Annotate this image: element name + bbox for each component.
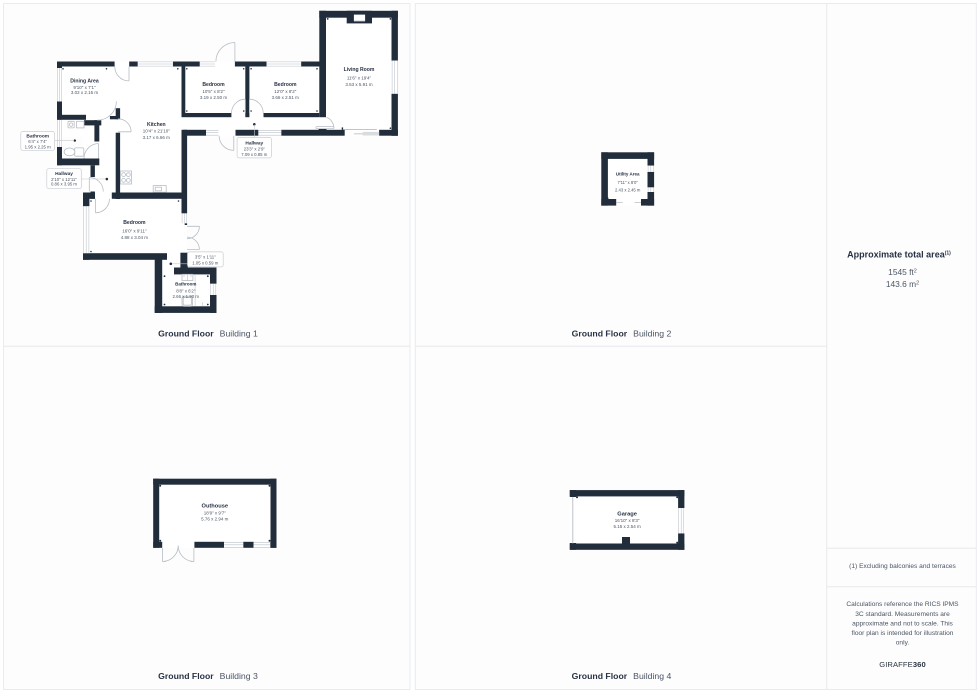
svg-text:Utility Area: Utility Area: [616, 172, 640, 177]
svg-text:143.6 m2: 143.6 m2: [886, 279, 919, 289]
svg-text:10'5" x 8'2": 10'5" x 8'2": [202, 89, 225, 94]
svg-text:Garage: Garage: [617, 512, 637, 518]
svg-text:2.43 x 2.45 m: 2.43 x 2.45 m: [615, 187, 641, 192]
svg-text:approximate and not to scale.: approximate and not to scale. This: [852, 620, 953, 627]
svg-text:Bedroom: Bedroom: [274, 82, 297, 88]
svg-text:3.53 x 5.91 m: 3.53 x 5.91 m: [345, 82, 373, 87]
svg-text:3.66 x 2.51 m: 3.66 x 2.51 m: [272, 95, 300, 100]
svg-text:Ground FloorBuilding 4: Ground FloorBuilding 4: [572, 671, 672, 681]
svg-text:Bedroom: Bedroom: [202, 82, 225, 88]
svg-text:Bathroom: Bathroom: [175, 281, 196, 286]
svg-text:Ground FloorBuilding 2: Ground FloorBuilding 2: [572, 329, 672, 339]
svg-text:1.95 x 2.25 m: 1.95 x 2.25 m: [25, 145, 51, 150]
svg-text:Living Room: Living Room: [344, 67, 375, 73]
svg-text:1545 ft2: 1545 ft2: [888, 267, 917, 277]
svg-text:only.: only.: [896, 640, 910, 647]
svg-text:Bedroom: Bedroom: [123, 220, 146, 226]
svg-text:Kitchen: Kitchen: [147, 122, 166, 128]
svg-text:0.86 x 3.95 m: 0.86 x 3.95 m: [51, 182, 77, 187]
svg-text:5.76 x 2.94 m: 5.76 x 2.94 m: [201, 516, 229, 521]
svg-text:floor plan is intended for ill: floor plan is intended for illustration: [852, 630, 954, 637]
svg-text:12'0" x 8'2": 12'0" x 8'2": [274, 89, 297, 94]
svg-text:3.19 x 2.50 m: 3.19 x 2.50 m: [200, 95, 228, 100]
svg-text:2.66 x 1.90 m: 2.66 x 1.90 m: [172, 294, 199, 299]
svg-text:18'9" x 9'7": 18'9" x 9'7": [204, 510, 227, 515]
svg-text:7.09 x 0.85 m: 7.09 x 0.85 m: [241, 152, 267, 157]
svg-text:1.05 x 0.59 m: 1.05 x 0.59 m: [192, 261, 218, 266]
svg-text:6'4" x 7'4": 6'4" x 7'4": [28, 139, 47, 144]
svg-text:23'3" x 2'9": 23'3" x 2'9": [244, 146, 266, 151]
svg-text:7'11" x 8'0": 7'11" x 8'0": [618, 180, 639, 185]
svg-text:Calculations reference the RIC: Calculations reference the RICS IPMS: [846, 601, 959, 608]
svg-text:3'5" x 1'11": 3'5" x 1'11": [195, 254, 216, 259]
svg-text:Approximate total area(1): Approximate total area(1): [847, 250, 951, 260]
svg-text:GIRAFFE360: GIRAFFE360: [879, 660, 926, 669]
svg-text:8'8" x 6'2": 8'8" x 6'2": [176, 288, 196, 293]
svg-text:16'0" x 9'11": 16'0" x 9'11": [122, 228, 147, 233]
svg-text:Ground FloorBuilding 1: Ground FloorBuilding 1: [158, 329, 258, 339]
svg-text:(1) Excluding balconies and te: (1) Excluding balconies and terraces: [849, 563, 956, 570]
svg-text:5.15 x 2.54 m: 5.15 x 2.54 m: [613, 524, 641, 529]
svg-text:Outhouse: Outhouse: [202, 504, 229, 510]
svg-text:Ground FloorBuilding 3: Ground FloorBuilding 3: [158, 671, 258, 681]
svg-text:16'10" x 8'3": 16'10" x 8'3": [615, 518, 640, 523]
svg-text:3.17 x 6.66 m: 3.17 x 6.66 m: [143, 135, 171, 140]
svg-text:3.02 x 2.16 m: 3.02 x 2.16 m: [71, 90, 99, 95]
svg-text:9'10" x 7'1": 9'10" x 7'1": [73, 85, 96, 90]
svg-text:Dining Area: Dining Area: [70, 78, 99, 84]
svg-text:11'6" x 19'4": 11'6" x 19'4": [347, 75, 372, 80]
svg-text:10'4" x 21'10": 10'4" x 21'10": [143, 128, 171, 133]
svg-text:4.88 x 3.04 m: 4.88 x 3.04 m: [121, 235, 149, 240]
svg-text:3C standard. Measurements are: 3C standard. Measurements are: [855, 611, 950, 618]
